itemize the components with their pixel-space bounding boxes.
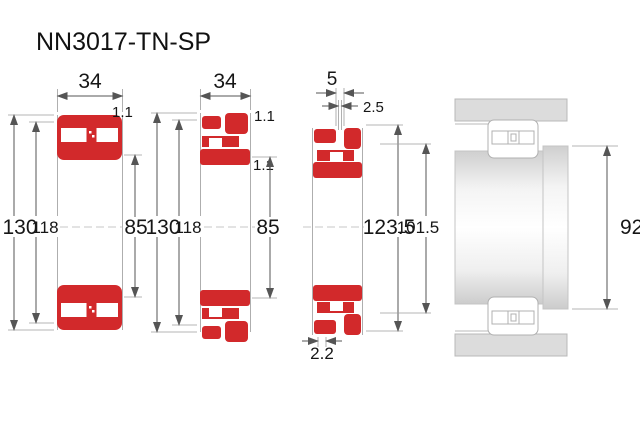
ring-block bbox=[314, 129, 336, 143]
bearing-section-top bbox=[57, 115, 122, 160]
ring-block bbox=[344, 128, 361, 149]
cage-notch bbox=[330, 302, 343, 311]
cage-block bbox=[202, 116, 221, 129]
view-section-cage: 34 1.1 1.1 130 118 85 bbox=[145, 70, 281, 342]
dim-bore-diameter: 85 bbox=[123, 155, 148, 297]
dim-outer-chamfer-label: 1.1 bbox=[254, 108, 275, 125]
cage-dot bbox=[511, 134, 516, 141]
ring-band bbox=[313, 285, 362, 301]
cage-notch bbox=[330, 152, 343, 161]
dim-width: 34 bbox=[201, 70, 251, 110]
cage-block bbox=[225, 321, 248, 342]
dim-width-label: 34 bbox=[78, 70, 102, 93]
page-title: NN3017-TN-SP bbox=[36, 28, 211, 56]
ring-band bbox=[200, 149, 250, 165]
cage-dot bbox=[92, 135, 95, 138]
dim-abutment-diameter: 92 bbox=[572, 146, 640, 309]
dim-shoulder-diameter-label: 101.5 bbox=[397, 218, 440, 237]
ring-block bbox=[344, 314, 361, 335]
dim-hole-diameter-label: 2.5 bbox=[363, 99, 384, 116]
dim-width-label: 34 bbox=[213, 70, 237, 93]
cage-dot bbox=[92, 310, 95, 313]
bearing-outline-bottom bbox=[488, 297, 538, 335]
view-section-basic: 34 1.1 130 118 85 bbox=[2, 70, 148, 330]
dim-inner-chamfer-label: 1.1 bbox=[253, 157, 274, 174]
dim-abutment-label: 92 bbox=[620, 216, 640, 239]
bearing-section-bottom bbox=[313, 285, 362, 335]
dim-groove-width-label: 5 bbox=[327, 69, 338, 90]
shaft bbox=[455, 151, 543, 304]
cage-dot bbox=[511, 314, 516, 321]
cage-notch bbox=[209, 138, 222, 147]
housing-top bbox=[455, 99, 567, 121]
dim-bore-label: 85 bbox=[256, 216, 279, 239]
dim-groove-offset: 2.2 bbox=[302, 337, 342, 363]
dim-groove-width: 5 bbox=[316, 69, 364, 126]
dim-chamfer-label: 1.1 bbox=[112, 104, 133, 121]
shaft-shoulder bbox=[543, 146, 568, 309]
bearing-outline-top bbox=[488, 120, 538, 158]
ring-band bbox=[200, 290, 250, 306]
dim-raceway-diameter-label: 118 bbox=[174, 218, 201, 237]
bearing-drawing: NN3017-TN-SP 34 1.1 bbox=[0, 0, 640, 440]
view-mounting: 92 bbox=[455, 99, 640, 356]
bearing-section-top bbox=[313, 128, 362, 178]
cage-notch bbox=[209, 308, 222, 317]
cage-dot bbox=[89, 306, 92, 309]
housing-bottom bbox=[455, 334, 567, 356]
cage-bar bbox=[87, 303, 97, 317]
cage-bar bbox=[87, 128, 97, 142]
bearing-section-top bbox=[200, 113, 250, 165]
cage-block bbox=[202, 326, 221, 339]
dim-bore-diameter: 85 bbox=[252, 157, 281, 298]
dim-groove-offset-label: 2.2 bbox=[310, 344, 334, 363]
bearing-drawing-page: NN3017-TN-SP 34 1.1 bbox=[0, 0, 640, 440]
bearing-section-bottom bbox=[57, 285, 122, 330]
ring-block bbox=[314, 320, 336, 334]
dim-bore-label: 85 bbox=[124, 216, 147, 239]
cage-dot bbox=[89, 131, 92, 134]
ring-band bbox=[313, 162, 362, 178]
view-section-groove: 5 2.5 123.5 101.5 2. bbox=[302, 69, 439, 363]
cage-block bbox=[225, 113, 248, 134]
dim-raceway-diameter-label: 118 bbox=[31, 218, 58, 237]
bearing-section-bottom bbox=[200, 290, 250, 342]
